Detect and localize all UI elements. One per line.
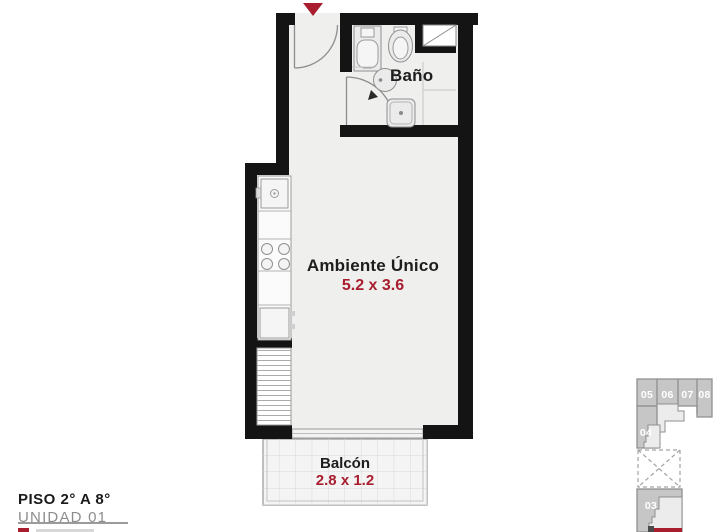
main-room-dimensions: 5.2 x 3.6 bbox=[273, 277, 473, 295]
main-room-label: Ambiente Único bbox=[273, 256, 473, 276]
floorplan-canvas: 05 06 07 08 04 03 Baño Ambiente Único 5.… bbox=[0, 0, 720, 532]
keyplan-unit-04-label: 04 bbox=[640, 427, 652, 439]
keyplan-unit-05-label: 05 bbox=[641, 389, 653, 401]
keyplan-corridor bbox=[657, 404, 684, 432]
keyplan-unit-08-label: 08 bbox=[698, 389, 710, 401]
footer-divider bbox=[18, 522, 128, 524]
kitchen-sink bbox=[256, 179, 288, 208]
legend-swatch-cropped bbox=[18, 528, 29, 532]
keyplan: 05 06 07 08 04 03 bbox=[637, 379, 712, 532]
keyplan-highlighted-unit bbox=[654, 528, 682, 532]
stair-hatch bbox=[257, 348, 291, 425]
shower bbox=[387, 99, 415, 127]
main-room-label-group: Ambiente Único 5.2 x 3.6 bbox=[273, 256, 473, 295]
balcony-dimensions: 2.8 x 1.2 bbox=[263, 472, 427, 489]
keyplan-unit-06-label: 06 bbox=[661, 389, 673, 401]
keyplan-unit-07-label: 07 bbox=[681, 389, 693, 401]
balcony-label: Balcón bbox=[263, 455, 427, 472]
balcony-label-group: Balcón 2.8 x 1.2 bbox=[263, 455, 427, 489]
floor-title: PISO 2° A 8° bbox=[18, 491, 111, 508]
keyplan-unit-03-label: 03 bbox=[645, 500, 657, 512]
bathroom-label: Baño bbox=[390, 66, 433, 86]
plan-title-block: PISO 2° A 8° UNIDAD 01 bbox=[18, 491, 111, 526]
duct-shaft bbox=[423, 25, 456, 46]
vanity-sink bbox=[354, 26, 381, 71]
sliding-door bbox=[292, 429, 423, 438]
